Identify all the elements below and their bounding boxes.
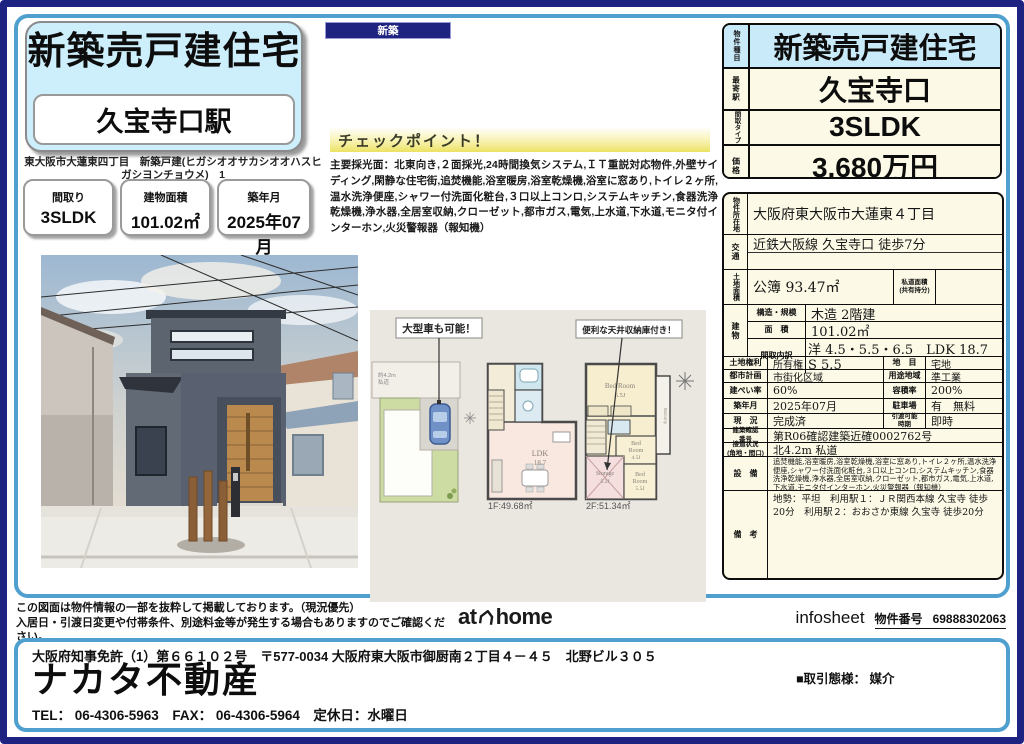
svg-text:Storage: Storage [596, 471, 615, 477]
row-label: 間取タイプ [731, 111, 741, 144]
land-area: 公簿 93.47㎡ [748, 270, 894, 304]
company-frame: 大阪府知事免許（1）第６６１０２号 〒577-0034 大阪府東大阪市御厨南２丁… [14, 638, 1010, 732]
layout-type: 3SLDK [750, 111, 1000, 144]
row-label: 物件種目 [731, 30, 741, 62]
info-box-built-date: 築年月 2025年07月 [217, 179, 311, 236]
main-frame: 新築売戸建住宅 久宝寺口駅 東大阪市大蓮東四丁目 新築戸建(ヒガシオオサカシオオ… [14, 14, 1010, 598]
table-row: 都市計画 市街化区域 用途地域 準工業 [724, 370, 1002, 383]
checkpoint-body: 主要採光面：北東向き,２面採光,24時間換気システム,ＩＴ重説対応物件,外壁サイ… [330, 158, 718, 237]
checkpoint-title: チェックポイント！ [330, 128, 710, 152]
svg-text:5.2J: 5.2J [600, 479, 610, 485]
deal-type: ■取引態様： 媒介 [796, 668, 895, 687]
svg-text:Room: Room [629, 448, 644, 454]
row-label: 最寄駅 [731, 76, 742, 102]
info-value: 101.02㎡ [122, 208, 209, 233]
new-build-badge: 新築 [325, 22, 451, 39]
info-label: 建物面積 [122, 189, 209, 205]
title-box: 新築売戸建住宅 久宝寺口駅 [25, 21, 303, 152]
nearest-station: 久宝寺口 [750, 69, 1000, 109]
table-row: 価格 3,680万円 [724, 146, 1000, 180]
summary-table: 物件種目 新築売戸建住宅 最寄駅 久宝寺口 間取タイプ 3SLDK 価格 3,6… [722, 23, 1002, 179]
svg-text:Room: Room [633, 479, 648, 485]
infosheet-page: 新築売戸建住宅 久宝寺口駅 東大阪市大蓮東四丁目 新築戸建(ヒガシオオサカシオオ… [0, 0, 1024, 744]
building-area: 101.02㎡ [806, 322, 1002, 338]
svg-text:私道: 私道 [378, 378, 390, 386]
private-road-area [936, 270, 1002, 304]
road-access: 北4.2m 私道 [768, 443, 1002, 456]
table-row: 設 備 追焚機能,浴室暖房,浴室乾燥機,浴室に窓あり,トイレ２ヶ所,温水洗浄便座… [724, 457, 1002, 491]
disclaimer-strip: この図面は物件情報の一部を抜粋して掲載しております。（現況優先） 入居日・引渡日… [16, 600, 1008, 636]
row-label: 価格 [731, 157, 742, 175]
property-number: 物件番号 69888302063 [875, 610, 1006, 629]
table-row: 建物 構造・規模 木造 2階建 面 積 101.02㎡ 間取内訳 洋 4.5・5… [724, 305, 1002, 357]
svg-text:大型車も可能！: 大型車も可能！ [402, 322, 476, 335]
detail-table: 物件所在地 大阪府東大阪市大蓮東４丁目 交通 近鉄大阪線 久宝寺口 徒歩7分 土… [722, 192, 1004, 580]
table-row: 最寄駅 久宝寺口 [724, 69, 1000, 111]
station-name: 久宝寺口駅 [33, 94, 295, 145]
transport-line-2 [748, 253, 1002, 269]
table-row: 築年月 2025年07月 駐車場 有 無料 [724, 399, 1002, 414]
table-row: 土地面積 公簿 93.47㎡ 私道面積 (共有持分) [724, 270, 1002, 305]
svg-text:Bed Room: Bed Room [605, 382, 636, 390]
property-photo [41, 255, 358, 568]
svg-text:1F:49.68㎡: 1F:49.68㎡ [488, 501, 533, 511]
property-type: 新築売戸建住宅 [750, 25, 1000, 67]
athome-house-icon [479, 609, 494, 625]
athome-logo: at home [458, 604, 552, 630]
svg-text:LDK: LDK [532, 449, 549, 458]
svg-text:2F:51.34㎡: 2F:51.34㎡ [586, 501, 631, 511]
price: 3,680万円 [750, 146, 1000, 180]
table-row: 物件所在地 大阪府東大阪市大蓮東４丁目 [724, 194, 1002, 235]
table-row: 交通 近鉄大阪線 久宝寺口 徒歩7分 [724, 235, 1002, 270]
info-value: 2025年07月 [219, 208, 309, 258]
transport-line: 近鉄大阪線 久宝寺口 徒歩7分 [748, 235, 1002, 253]
property-location: 大阪府東大阪市大蓮東４丁目 [748, 194, 1002, 234]
info-value: 3SLDK [25, 208, 112, 228]
svg-text:約4.2m: 約4.2m [378, 371, 396, 379]
table-row: 間取タイプ 3SLDK [724, 111, 1000, 146]
property-title: 新築売戸建住宅 [27, 33, 301, 71]
disclaimer-line-1: この図面は物件情報の一部を抜粋して掲載しております。（現況優先） [16, 601, 446, 616]
table-row: 建築確認 番号 第R06確認建築近確0002762号 [724, 429, 1002, 443]
svg-text:5.5J: 5.5J [635, 486, 645, 492]
svg-text:Bed: Bed [631, 441, 641, 447]
info-box-building-area: 建物面積 101.02㎡ [120, 179, 211, 236]
site-plan: 約4.2m 私道 [372, 362, 460, 502]
company-name: ナカタ不動産 [32, 661, 260, 699]
table-row: 接道状況 (角地・間口) 北4.2m 私道 [724, 443, 1002, 457]
table-row: 建ぺい率 60% 容積率 200% [724, 383, 1002, 399]
company-contact: TEL： 06-4306-5963 FAX： 06-4306-5964 定休日：… [32, 704, 408, 724]
infosheet-label: infosheet [796, 608, 865, 628]
info-box-layout: 間取り 3SLDK [23, 179, 114, 236]
table-row: 物件種目 新築売戸建住宅 [724, 25, 1000, 69]
info-label: 間取り [25, 189, 112, 205]
info-label: 築年月 [219, 189, 309, 205]
svg-text:4.5J: 4.5J [631, 455, 641, 461]
car-icon [430, 404, 450, 444]
svg-text:Balcony: Balcony [663, 408, 668, 425]
building-confirmation-no: 第R06確認建築近確0002762号 [768, 429, 1002, 442]
floor-plan-panel: 約4.2m 私道 大型車も可能！ [370, 310, 706, 602]
svg-text:Bed: Bed [635, 472, 645, 478]
equipment-list: 追焚機能,浴室暖房,浴室乾燥機,浴室に窓あり,トイレ２ヶ所,温水洗浄便座,シャワ… [768, 457, 1002, 490]
svg-text:便利な天井収納庫付き！: 便利な天井収納庫付き！ [582, 325, 676, 335]
svg-text:18.7: 18.7 [534, 459, 547, 467]
remarks: 地勢：平坦 利用駅１：ＪＲ関西本線 久宝寺 徒歩20分 利用駅２：おおさか東線 … [768, 491, 1002, 578]
structure: 木造 2階建 [806, 305, 1002, 321]
table-row: 備 考 地勢：平坦 利用駅１：ＪＲ関西本線 久宝寺 徒歩20分 利用駅２：おおさ… [724, 491, 1002, 578]
